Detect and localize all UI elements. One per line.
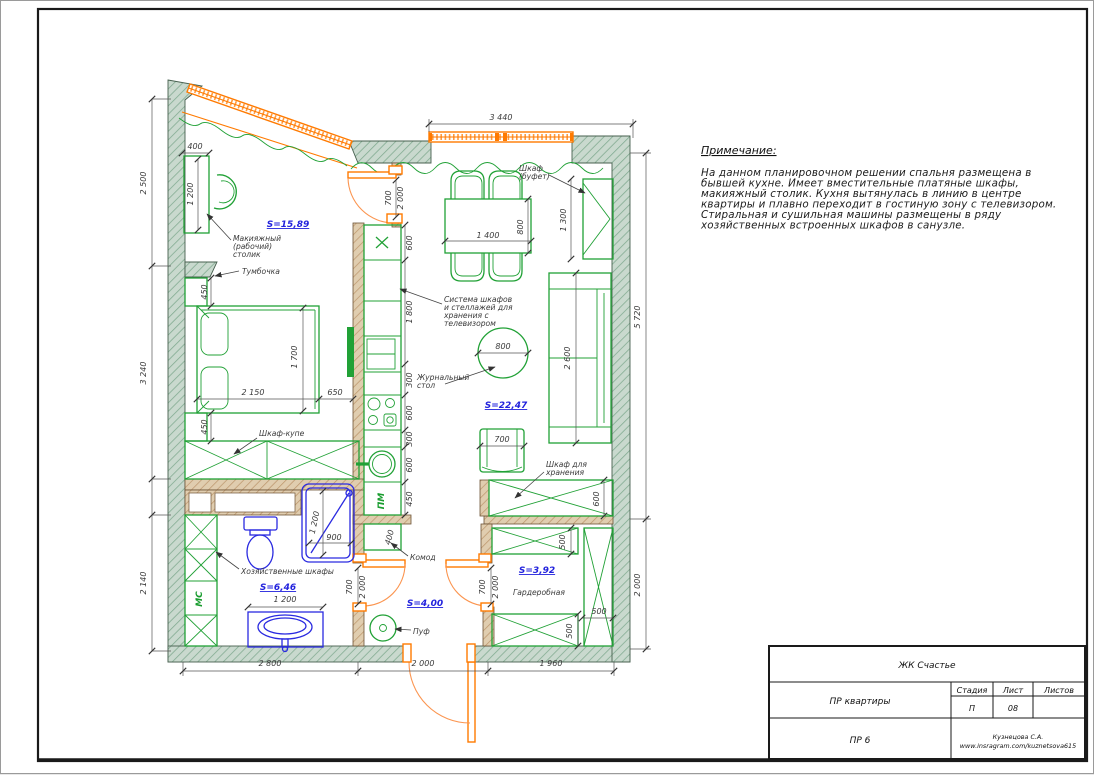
- dim-nst-top: 450: [200, 284, 209, 299]
- title-sheet-value: 08: [1008, 704, 1018, 713]
- dim-bed-gap: 650: [327, 388, 342, 397]
- note-title: Примечание:: [701, 144, 777, 157]
- dim-ward-door-w: 700: [478, 579, 487, 594]
- title-sheet-header: Лист: [1002, 686, 1024, 695]
- note-line-6: хозяйственных встроенных шкафов в санузл…: [700, 220, 965, 232]
- dim-shelf-top: 500: [558, 534, 567, 549]
- label-sys-4: телевизором: [444, 319, 496, 328]
- label-mc: МС: [195, 591, 205, 607]
- dim-basin-w: 1 200: [274, 595, 297, 604]
- title-block: ЖК Счастье ПР квартиры Стадия Лист Листо…: [769, 646, 1085, 759]
- dim-nst-bot: 450: [200, 419, 209, 434]
- wardrobe-closet: [185, 441, 359, 479]
- dim-coffee-d: 800: [495, 342, 510, 351]
- dim-k450: 450: [405, 491, 414, 506]
- dim-shower-w: 900: [326, 533, 341, 542]
- dimension-texts: 3 440 400 2 500 3 240 2 140 1 200 700 2 …: [139, 113, 642, 668]
- dim-makeup-depth: 1 200: [186, 183, 195, 206]
- label-pm: ПМ: [377, 493, 387, 510]
- top-window: [429, 132, 573, 142]
- title-sheets-header: Листов: [1043, 686, 1074, 695]
- toilet: [244, 517, 277, 569]
- title-project: ЖК Счастье: [897, 661, 956, 671]
- label-buffet-2: (буфет): [519, 172, 550, 181]
- makeup-chair: [214, 175, 236, 209]
- dim-ward-d: 500: [591, 607, 606, 616]
- sofa: [549, 273, 611, 443]
- dim-armchair-w: 700: [494, 435, 509, 444]
- dim-left-top: 2 500: [139, 172, 148, 195]
- dim-top-window: 3 440: [490, 113, 513, 122]
- dim-table-w: 1 400: [477, 231, 500, 240]
- label-tumbochka: Тумбочка: [242, 267, 280, 276]
- label-hoz: Хозяйственные шкафы: [240, 567, 334, 576]
- dim-bottom-left: 2 800: [259, 659, 282, 668]
- dim-komod-w: 400: [383, 529, 396, 546]
- label-wardrobe-room: Гардеробная: [513, 588, 565, 597]
- note-block: Примечание: На данном планировочном реше…: [700, 144, 1056, 232]
- label-makeup-3: столик: [233, 250, 261, 259]
- dim-storage-d: 600: [592, 491, 601, 506]
- pouf: [370, 615, 396, 641]
- dim-bed-door-h: 2 000: [396, 187, 405, 210]
- wardrobe-shelves: [492, 528, 613, 646]
- area-hall: S=4,00: [407, 599, 443, 609]
- bedroom-door: [348, 166, 402, 223]
- label-kupe: Шкаф-купе: [259, 429, 305, 438]
- dim-right-top: 5 720: [633, 306, 642, 329]
- dim-bath-door-w: 700: [345, 579, 354, 594]
- dim-k1800: 1 800: [405, 301, 414, 324]
- dim-table-d: 800: [516, 219, 525, 234]
- dim-ward-door-h: 2 000: [491, 576, 500, 599]
- title-stage-header: Стадия: [957, 686, 988, 695]
- title-stage-value: П: [969, 704, 975, 713]
- dim-buffet-h: 1 300: [559, 209, 568, 232]
- title-author: Кузнецова С.А.: [993, 733, 1044, 741]
- dim-bottom-mid: 2 000: [412, 659, 435, 668]
- dim-sofa-l: 2 600: [563, 347, 572, 370]
- dim-shower-l: 1 200: [308, 510, 322, 534]
- dim-bath-door-h: 2 000: [358, 576, 367, 599]
- label-komod: Комод: [410, 553, 436, 562]
- dim-bed-w: 2 150: [242, 388, 265, 397]
- dim-bed-l: 1 700: [290, 346, 299, 369]
- label-storage-2: хранения: [545, 468, 585, 477]
- dim-right-bot: 2 000: [633, 574, 642, 597]
- dim-k300b: 300: [405, 431, 414, 446]
- dim-k600c: 600: [405, 457, 414, 472]
- title-doc: ПР квартиры: [830, 697, 891, 707]
- dim-makeup-width: 400: [187, 142, 202, 151]
- buffet-cabinet: [583, 179, 613, 259]
- dim-bottom-right: 1 960: [540, 659, 563, 668]
- area-living: S=22,47: [485, 401, 528, 411]
- label-puf: Пуф: [413, 627, 430, 636]
- floor-plan-drawing: 3 440 400 2 500 3 240 2 140 1 200 700 2 …: [1, 1, 1094, 775]
- dim-left-bot: 2 140: [139, 572, 148, 595]
- title-code: ПР 6: [850, 736, 871, 746]
- dim-left-mid: 3 240: [139, 362, 148, 385]
- dim-k600a: 600: [405, 235, 414, 250]
- dim-k300a: 300: [405, 372, 414, 387]
- tv-on-wall: [347, 327, 354, 377]
- drawing-page: 3 440 400 2 500 3 240 2 140 1 200 700 2 …: [0, 0, 1094, 774]
- area-bath: S=6,46: [260, 583, 296, 593]
- dim-k600b: 600: [405, 405, 414, 420]
- area-wardrobe: S=3,92: [519, 566, 555, 576]
- utility-cabinets: [185, 515, 217, 646]
- area-bedroom: S=15,89: [267, 220, 310, 230]
- label-coffee-2: стол: [417, 381, 435, 390]
- dim-shelf-bot: 500: [565, 623, 574, 638]
- dim-bed-door-w: 700: [384, 190, 393, 205]
- dimension-lines: [149, 96, 651, 676]
- title-site: www.insragram.com/kuznetsova615: [960, 742, 1076, 750]
